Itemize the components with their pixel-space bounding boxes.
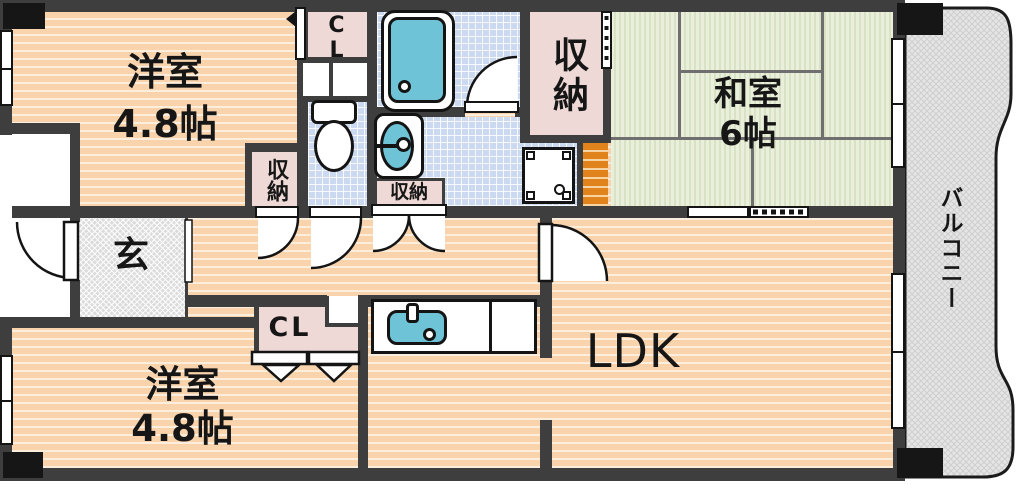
bathtub-drain xyxy=(398,80,411,93)
washbasin xyxy=(374,113,424,179)
wall-segment xyxy=(893,167,905,275)
window xyxy=(0,30,13,106)
window-tick xyxy=(2,400,11,402)
floorplan: 洋室 4.8帖 洋室 4.8帖 和室 6帖 LDK 玄 CL CL 収納 収納 … xyxy=(0,0,1024,485)
closet-bottom-label: CL xyxy=(260,312,320,344)
counter-divider xyxy=(489,302,492,351)
kitchen-counter xyxy=(371,299,537,354)
wall-segment xyxy=(70,280,80,318)
toilet-shelf xyxy=(333,63,367,96)
wall-segment xyxy=(807,206,893,218)
window xyxy=(891,273,905,429)
wall-segment xyxy=(254,305,259,353)
washbasin-handle xyxy=(396,137,411,152)
wall-segment xyxy=(445,206,583,218)
room-label-west2-size: 4.8帖 xyxy=(45,407,320,451)
wall-segment xyxy=(0,468,905,481)
window-tick xyxy=(2,68,11,70)
room-label-west1-name: 洋室 xyxy=(30,50,300,96)
storage-hall-label: 収納 xyxy=(259,152,291,208)
wall-segment xyxy=(577,143,583,210)
bathtub-inner xyxy=(388,17,446,103)
pan-corner xyxy=(526,191,535,200)
room-label-west2-name: 洋室 xyxy=(45,363,320,407)
pillar xyxy=(897,448,943,478)
wall-segment xyxy=(360,206,373,218)
pan-drain xyxy=(554,184,565,195)
toilet-shelf xyxy=(303,63,329,96)
storage-washroom-label: 収納 xyxy=(374,181,444,204)
tatami-board-strip xyxy=(583,143,608,210)
room-label-west1-size: 4.8帖 xyxy=(30,102,300,148)
wall-segment xyxy=(358,295,368,468)
wall-segment xyxy=(0,0,905,12)
wall-segment xyxy=(325,323,358,327)
window-tick xyxy=(893,351,903,353)
room-label-ldk: LDK xyxy=(568,324,698,379)
window-tick xyxy=(893,103,903,105)
sink-faucet xyxy=(406,303,419,323)
tatami-line xyxy=(678,70,823,73)
room-label-entrance: 玄 xyxy=(102,234,160,277)
wall-segment xyxy=(12,206,258,218)
wall-segment xyxy=(0,317,258,328)
pillar xyxy=(3,452,43,478)
pillar xyxy=(897,3,943,35)
wall-segment xyxy=(540,218,552,223)
wall-segment xyxy=(747,206,750,218)
storage-upper-right-label: 収納 xyxy=(543,22,591,130)
closet-top-label: CL xyxy=(319,11,353,65)
room-label-washitsu-name: 和室 xyxy=(663,74,833,115)
wall-segment xyxy=(185,218,188,317)
sink-drain xyxy=(423,328,436,341)
exterior-notch xyxy=(0,133,70,317)
pan-corner xyxy=(562,151,571,160)
washing-machine-pan xyxy=(522,147,575,204)
wall-segment xyxy=(520,0,530,143)
wall-segment xyxy=(540,307,552,358)
wall-segment xyxy=(540,279,552,295)
wall-segment xyxy=(603,0,611,143)
wall-segment xyxy=(520,135,611,143)
window xyxy=(0,355,13,445)
wall-segment xyxy=(540,420,552,468)
door-opening xyxy=(327,296,358,326)
toilet-bowl xyxy=(314,120,354,172)
pan-corner xyxy=(526,151,535,160)
balcony-label: バルコニー xyxy=(933,158,965,338)
wall-segment xyxy=(0,328,12,358)
room-label-washitsu-size: 6帖 xyxy=(663,114,833,155)
wall-segment xyxy=(245,143,252,207)
bathtub xyxy=(381,10,455,112)
wall-segment xyxy=(515,107,527,117)
window xyxy=(891,38,905,168)
pillar xyxy=(3,3,45,29)
wall-segment xyxy=(583,206,688,218)
wall-segment xyxy=(297,206,311,218)
